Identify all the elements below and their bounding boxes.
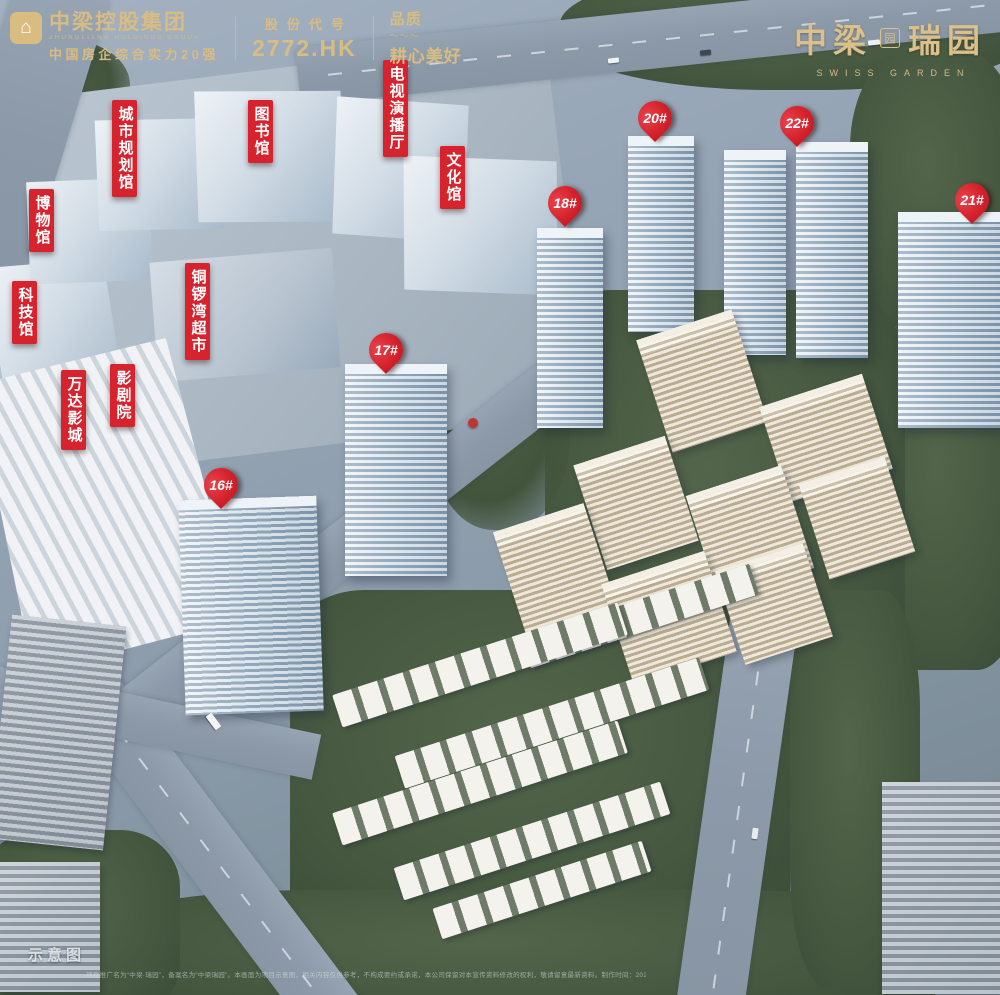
stock-code-label: 股份代号 (256, 14, 353, 33)
project-brand: 中梁 园 瑞园 SWISS GARDEN (794, 14, 986, 78)
building-marker-16: 16# (197, 461, 245, 509)
header-divider (235, 16, 236, 60)
city-block-west (0, 615, 126, 851)
park-sculpture (468, 418, 478, 428)
facility-label-culture-hall: 文化馆 (440, 146, 465, 209)
facility-label-causeway-bay-supermarket: 铜锣湾超市 (185, 263, 210, 360)
brand-name-part1: 中梁 (794, 14, 872, 62)
city-block-southwest (0, 862, 100, 992)
brand-slogan: 品质 ～～～ 耕心美好 (390, 8, 462, 67)
header-left: ⌂ 中梁控股集团 ZHONGLIANG HOLDINGS GROUP 中国房企综… (10, 8, 462, 67)
brand-seal-icon: 园 (880, 28, 900, 48)
tower-21 (898, 212, 1000, 428)
group-logo-texts: 中梁控股集团 ZHONGLIANG HOLDINGS GROUP 中国房企综合实… (49, 12, 219, 63)
facility-label-library: 图书馆 (248, 100, 273, 163)
tower-22-b (796, 142, 868, 358)
facility-label-wanda-cinema: 万达影城 (61, 370, 86, 450)
facility-label-tv-studio: 电视演播厅 (383, 60, 408, 157)
facility-label-science-hall: 科技馆 (12, 281, 37, 344)
building-marker-21: 21# (948, 176, 996, 224)
slogan-line1: 品质 (390, 8, 422, 29)
brand-name-en: SWISS GARDEN (809, 68, 970, 78)
tower-17 (345, 364, 447, 576)
city-block-southeast (882, 782, 1000, 994)
header-divider (373, 16, 374, 60)
group-name-en: ZHONGLIANG HOLDINGS GROUP (49, 35, 219, 41)
tower-18 (537, 228, 603, 428)
group-logo-unit: ⌂ 中梁控股集团 ZHONGLIANG HOLDINGS GROUP 中国房企综… (10, 12, 219, 63)
building-marker-22: 22# (773, 99, 821, 147)
facility-label-city-planning-hall: 城市规划馆 (112, 100, 137, 197)
brand-name-part2: 瑞园 (908, 14, 986, 62)
facility-label-theatre: 影剧院 (110, 364, 135, 427)
legal-disclaimer: 项目推广名为“中梁·瑞园”，备案名为“中梁瑞园”。本画面为项目示意图，相关内容仅… (86, 969, 646, 979)
zhongliang-logo-icon: ⌂ (10, 12, 42, 44)
schematic-watermark: 示意图 (28, 944, 85, 965)
aerial-rendering-poster: 城市规划馆 图书馆 电视演播厅 文化馆 博物馆 科技馆 铜锣湾超市 万达影城 影… (0, 0, 1000, 995)
stock-code-value: 2772.HK (252, 35, 357, 62)
group-tagline: 中国房企综合实力20强 (49, 44, 219, 63)
slogan-swoosh-icon: ～～～ (390, 29, 420, 42)
group-name: 中梁控股集团 (49, 12, 219, 34)
building-marker-18: 18# (541, 179, 589, 227)
building-marker-20: 20# (631, 94, 679, 142)
facility-label-museum: 博物馆 (29, 189, 54, 252)
building-marker-17: 17# (362, 326, 410, 374)
tower-16 (178, 496, 323, 716)
slogan-line2: 耕心美好 (390, 42, 462, 67)
tower-20 (628, 136, 694, 332)
stock-info: 股份代号 2772.HK (252, 14, 357, 62)
project-brand-row: 中梁 园 瑞园 (794, 14, 986, 62)
